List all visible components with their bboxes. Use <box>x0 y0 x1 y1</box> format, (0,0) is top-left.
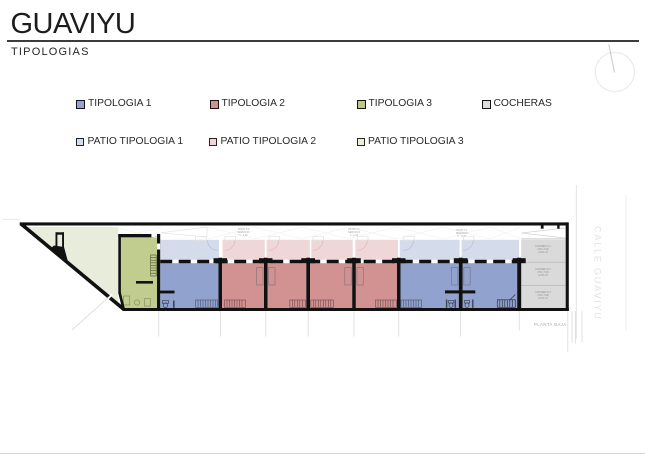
svg-text:2.50 x 5.00: 2.50 x 5.00 <box>537 272 549 274</box>
svg-text:h : 2.20: h : 2.20 <box>239 234 248 237</box>
svg-text:12.50 m2: 12.50 m2 <box>538 275 548 277</box>
svg-text:2.50 x 5.00: 2.50 x 5.00 <box>537 249 549 251</box>
svg-text:COCHERA N 1: COCHERA N 1 <box>535 245 551 248</box>
svg-text:12.50 m2: 12.50 m2 <box>538 298 548 300</box>
svg-text:PLANTA BAJA: PLANTA BAJA <box>534 322 567 327</box>
svg-text:CALLE GUAVIYU: CALLE GUAVIYU <box>593 226 604 321</box>
svg-text:COCHERA N 3: COCHERA N 3 <box>535 291 551 294</box>
svg-text:COCHERA N 2: COCHERA N 2 <box>535 268 551 271</box>
svg-text:12.50 m2: 12.50 m2 <box>538 252 548 254</box>
svg-text:2.50 x 5.00: 2.50 x 5.00 <box>537 295 549 297</box>
